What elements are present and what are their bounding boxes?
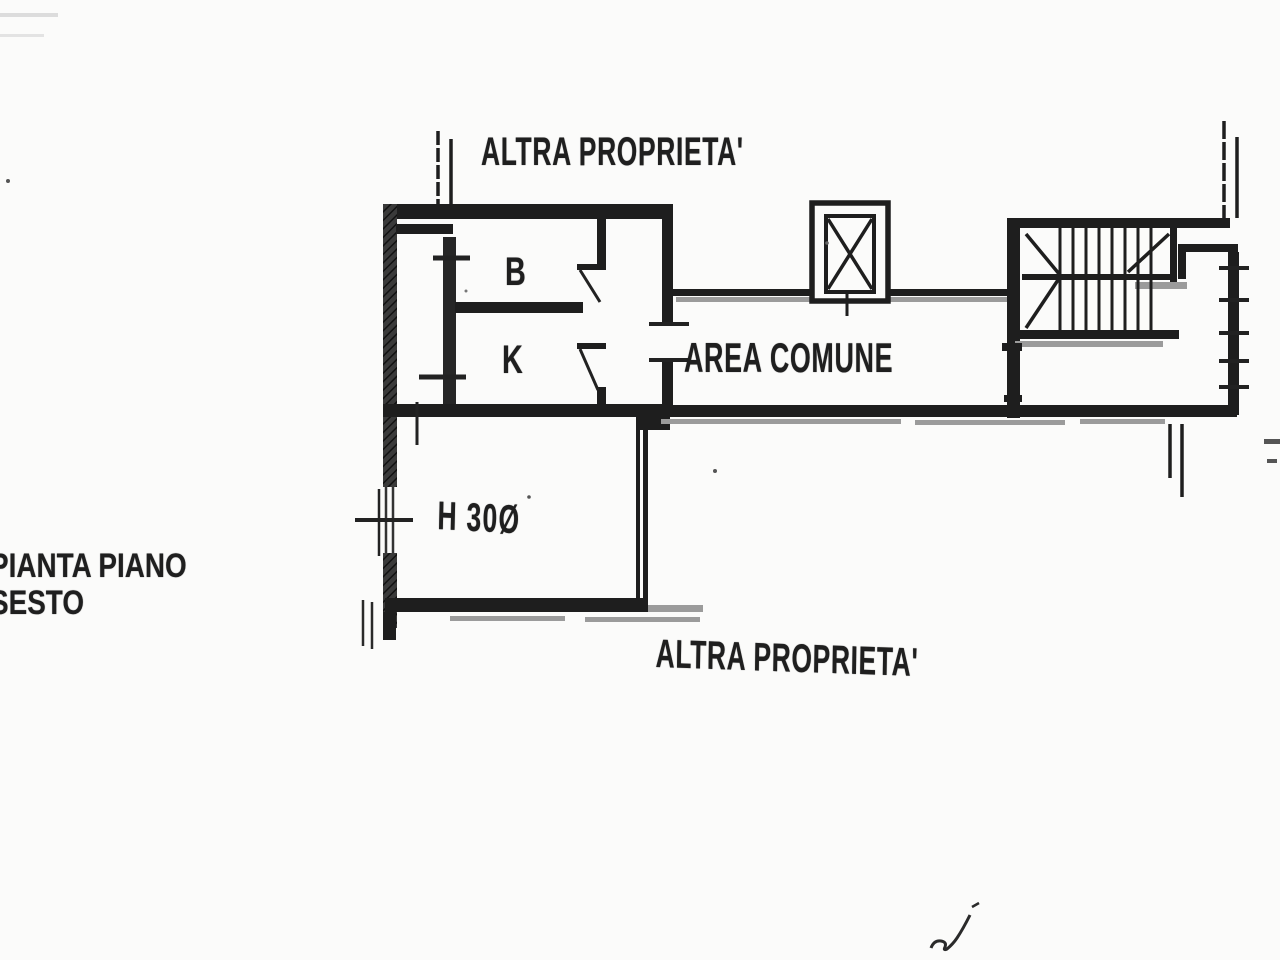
elevator-shaft — [812, 203, 888, 316]
scanned-floorplan-page: ALTRA PROPRIETA' B K AREA COMUNE H 30Ø P… — [0, 0, 1280, 960]
label-plan-title-line2: SESTO — [0, 585, 187, 622]
scan-artifacts — [0, 13, 829, 499]
label-common-area: AREA COMUNE — [684, 334, 893, 382]
door-swing-lines — [580, 270, 600, 390]
label-room-b: B — [505, 250, 527, 295]
staircase — [1002, 218, 1187, 418]
label-plan-title: PIANTA PIANO SESTO — [0, 548, 187, 622]
label-room-height: H 30Ø — [437, 494, 521, 543]
right-wing-walls — [1170, 121, 1280, 497]
signature-squiggle — [931, 903, 979, 950]
label-other-property-bottom: ALTRA PROPRIETA' — [655, 632, 918, 686]
label-room-k: K — [502, 338, 524, 383]
label-plan-title-line1: PIANTA PIANO — [0, 548, 187, 585]
label-other-property-top: ALTRA PROPRIETA' — [481, 130, 744, 175]
apartment-walls — [363, 131, 673, 649]
